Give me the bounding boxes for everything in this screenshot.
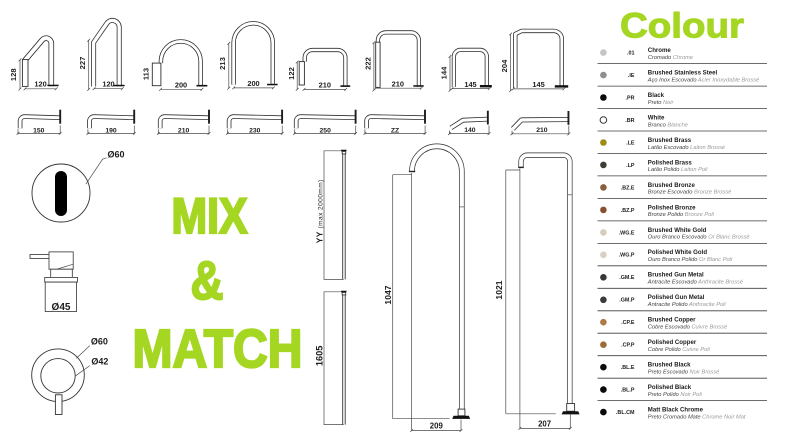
svg-text:.BL.CM: .BL.CM	[616, 410, 635, 416]
svg-text:222: 222	[363, 57, 372, 70]
svg-text:190: 190	[105, 127, 117, 134]
svg-text:128: 128	[9, 68, 18, 81]
svg-text:Brushed Stainless Steel: Brushed Stainless Steel	[648, 70, 718, 77]
svg-text:210: 210	[319, 81, 331, 90]
svg-text:&: &	[191, 251, 224, 311]
svg-text:145: 145	[464, 80, 476, 89]
svg-text:120: 120	[34, 80, 46, 89]
svg-text:150: 150	[33, 127, 45, 134]
svg-text:Preto Escovado Noir Brossé: Preto Escovado Noir Brossé	[648, 370, 719, 376]
svg-text:Polished Copper: Polished Copper	[648, 339, 697, 346]
svg-text:Black: Black	[648, 92, 665, 99]
svg-text:.LP: .LP	[626, 163, 635, 169]
svg-text:ZZ: ZZ	[391, 127, 399, 134]
svg-text:Preto Noir: Preto Noir	[648, 100, 675, 106]
svg-text:1021: 1021	[494, 280, 504, 299]
svg-text:Bronze Escovado Bronze Brossé: Bronze Escovado Bronze Brossé	[648, 190, 731, 196]
svg-text:250: 250	[320, 127, 332, 134]
svg-text:227: 227	[78, 57, 87, 70]
svg-text:.CP.E: .CP.E	[621, 320, 635, 326]
svg-text:.IE: .IE	[628, 73, 635, 79]
svg-text:MATCH: MATCH	[133, 320, 303, 379]
svg-text:Antracite Polido Anthracite Po: Antracite Polido Anthracite Poli	[647, 302, 727, 308]
svg-text:144: 144	[440, 66, 449, 79]
svg-text:Cobre Polido Cuivre Poli: Cobre Polido Cuivre Poli	[648, 347, 711, 353]
svg-text:.LE: .LE	[626, 140, 635, 146]
svg-text:.WG.P: .WG.P	[619, 253, 635, 259]
svg-text:Bronze Polido Bronze Poli: Bronze Polido Bronze Poli	[648, 212, 715, 218]
svg-text:1047: 1047	[383, 285, 393, 304]
svg-text:Brushed Black: Brushed Black	[648, 362, 691, 369]
svg-text:Preto Polido Noir Poli: Preto Polido Noir Poli	[648, 392, 703, 398]
svg-text:.BL.P: .BL.P	[621, 388, 635, 394]
svg-text:204: 204	[500, 59, 509, 72]
svg-text:Polished Bronze: Polished Bronze	[648, 204, 696, 211]
svg-text:210: 210	[392, 79, 404, 88]
svg-text:Brushed Gun Metal: Brushed Gun Metal	[648, 272, 704, 279]
svg-text:Brushed Bronze: Brushed Bronze	[648, 182, 696, 189]
svg-text:Colour: Colour	[620, 7, 744, 46]
svg-text:.PR: .PR	[626, 95, 635, 101]
svg-text:Chrome: Chrome	[648, 47, 672, 54]
svg-text:Ouro Branco Escovado Or Blanc: Ouro Branco Escovado Or Blanc Brossé	[648, 235, 750, 241]
svg-text:Preto Cromado Mate Chrome Noir: Preto Cromado Mate Chrome Noir Mat	[648, 414, 746, 420]
svg-text:Ø60: Ø60	[108, 149, 125, 159]
svg-text:Ouro Branco Polido Or Blanc Po: Ouro Branco Polido Or Blanc Poli	[648, 257, 733, 263]
svg-text:Polished Black: Polished Black	[648, 384, 692, 391]
svg-text:.CP.P: .CP.P	[621, 343, 635, 349]
svg-text:200: 200	[247, 79, 259, 88]
svg-text:Polished Brass: Polished Brass	[648, 159, 693, 166]
svg-text:209: 209	[430, 421, 444, 430]
svg-text:.BZ.E: .BZ.E	[621, 185, 635, 191]
svg-text:213: 213	[218, 57, 227, 70]
svg-text:207: 207	[538, 419, 551, 428]
svg-text:145: 145	[532, 80, 544, 89]
svg-text:Ø60: Ø60	[91, 337, 108, 347]
svg-text:.GM.E: .GM.E	[619, 275, 635, 281]
svg-text:Polished White Gold: Polished White Gold	[648, 249, 708, 256]
svg-text:Brushed Brass: Brushed Brass	[648, 137, 692, 144]
svg-text:.01: .01	[627, 51, 635, 57]
svg-text:113: 113	[142, 68, 151, 80]
svg-text:Ø42: Ø42	[91, 356, 108, 366]
svg-text:140: 140	[464, 127, 476, 134]
svg-text:1605: 1605	[314, 346, 324, 366]
svg-text:.WG.E: .WG.E	[619, 230, 635, 236]
svg-text:Aço Inox Escovado Acier Inoxyd: Aço Inox Escovado Acier Inoxydable Bross…	[647, 77, 759, 83]
svg-text:White: White	[648, 114, 665, 121]
svg-text:.BR: .BR	[625, 118, 634, 124]
svg-text:Polished Gun Metal: Polished Gun Metal	[648, 294, 705, 301]
svg-text:120: 120	[102, 79, 114, 88]
svg-text:Latão Polido Laiton Poli: Latão Polido Laiton Poli	[648, 167, 708, 173]
svg-text:122: 122	[287, 67, 296, 80]
svg-text:Antracite Escovado Anthracite: Antracite Escovado Anthracite Brossé	[647, 280, 743, 286]
svg-text:Cromado Chrome: Cromado Chrome	[648, 55, 693, 61]
svg-text:.BL.E: .BL.E	[621, 365, 635, 371]
svg-text:230: 230	[249, 127, 261, 134]
svg-text:.GM.P: .GM.P	[619, 298, 635, 304]
svg-text:Brushed White Gold: Brushed White Gold	[648, 227, 707, 234]
svg-text:Branco Blanche: Branco Blanche	[648, 122, 688, 128]
svg-text:Latão Escovado Laiton Brossé: Latão Escovado Laiton Brossé	[648, 145, 725, 151]
svg-text:.BZ.P: .BZ.P	[621, 208, 635, 214]
svg-text:210: 210	[178, 127, 190, 134]
svg-text:Ø45: Ø45	[52, 302, 71, 313]
svg-text:200: 200	[175, 81, 187, 90]
svg-text:Matt Black Chrome: Matt Black Chrome	[648, 407, 704, 414]
svg-text:Brushed Copper: Brushed Copper	[648, 317, 696, 324]
svg-text:210: 210	[536, 127, 548, 134]
svg-text:MIX: MIX	[172, 188, 248, 244]
svg-text:Cobre Escovado Cuivre Brossé: Cobre Escovado Cuivre Brossé	[648, 325, 727, 331]
